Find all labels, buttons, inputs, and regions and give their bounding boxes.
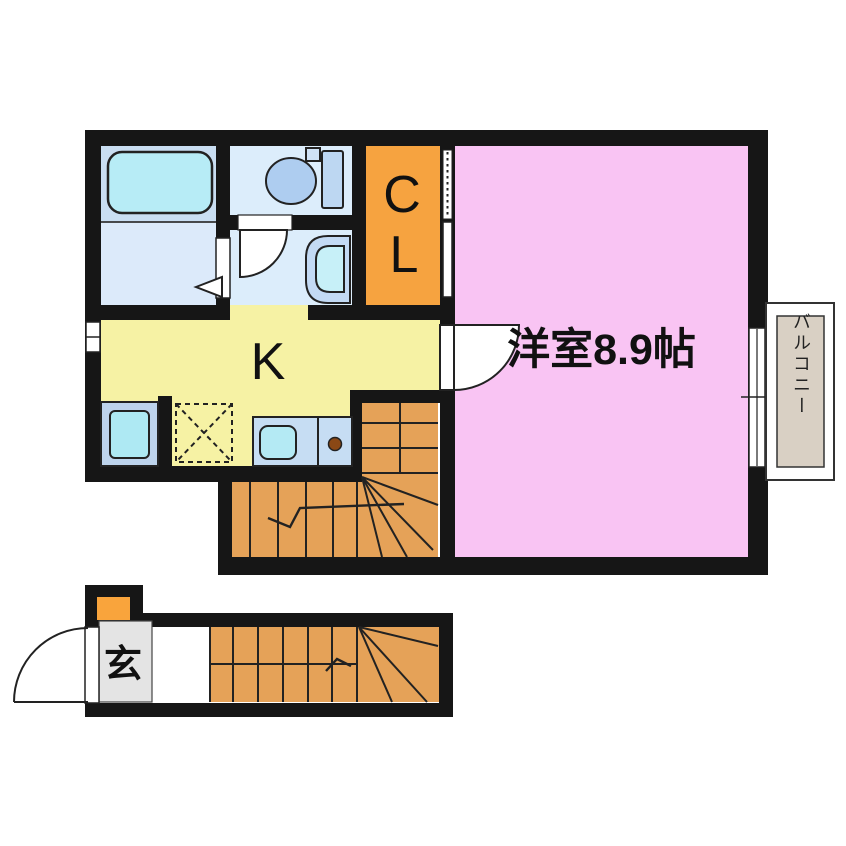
wall-sanitary-bottom [85, 305, 230, 320]
wall-washer-stub [158, 396, 172, 466]
washroom-floor [101, 222, 216, 305]
bathtub-icon [108, 152, 212, 213]
staircase-upper [232, 482, 362, 557]
lower-floor [14, 585, 453, 717]
western-room-door-leaf [440, 325, 454, 390]
wall-lower-right [439, 613, 453, 717]
wall-top [85, 130, 768, 146]
toilet-bowl-icon [266, 158, 316, 204]
wall-lower-top [143, 613, 453, 627]
closet-door-panel [443, 222, 452, 297]
wall-closet-divider [352, 146, 366, 305]
closet-label-l: L [374, 228, 434, 282]
closet-label-c: C [372, 168, 432, 222]
floor-plan: 洋室8.9帖 K C L 玄 バルコニー [0, 0, 846, 846]
kitchen-passage [230, 305, 308, 320]
balcony-label: バルコニー [788, 312, 814, 472]
washbasin-bowl-icon [316, 246, 344, 292]
wall-lower-bottom [85, 703, 453, 717]
entrance-door-swing [14, 628, 88, 702]
wall-stairs-top [350, 390, 440, 403]
toilet-tank-icon [322, 151, 343, 208]
kitchen-sink-icon [260, 426, 296, 459]
wall-sanitary-bottom [308, 305, 455, 320]
gas-burner-icon [329, 438, 342, 451]
wall-stairs-left [218, 482, 232, 557]
kitchen-label: K [236, 336, 300, 388]
western-room-label: 洋室8.9帖 [455, 326, 748, 374]
entrance-label: 玄 [103, 645, 143, 685]
washing-machine-drum [110, 411, 149, 458]
toilet-flush-icon [306, 148, 320, 161]
toilet-door-opening [238, 215, 292, 230]
floor-plan-graphics [0, 0, 846, 846]
entrance-door-opening [85, 627, 99, 703]
wall-bottom [218, 557, 768, 575]
wall-kitchen-bottom [85, 466, 362, 482]
shoe-cabinet-icon [97, 597, 130, 620]
